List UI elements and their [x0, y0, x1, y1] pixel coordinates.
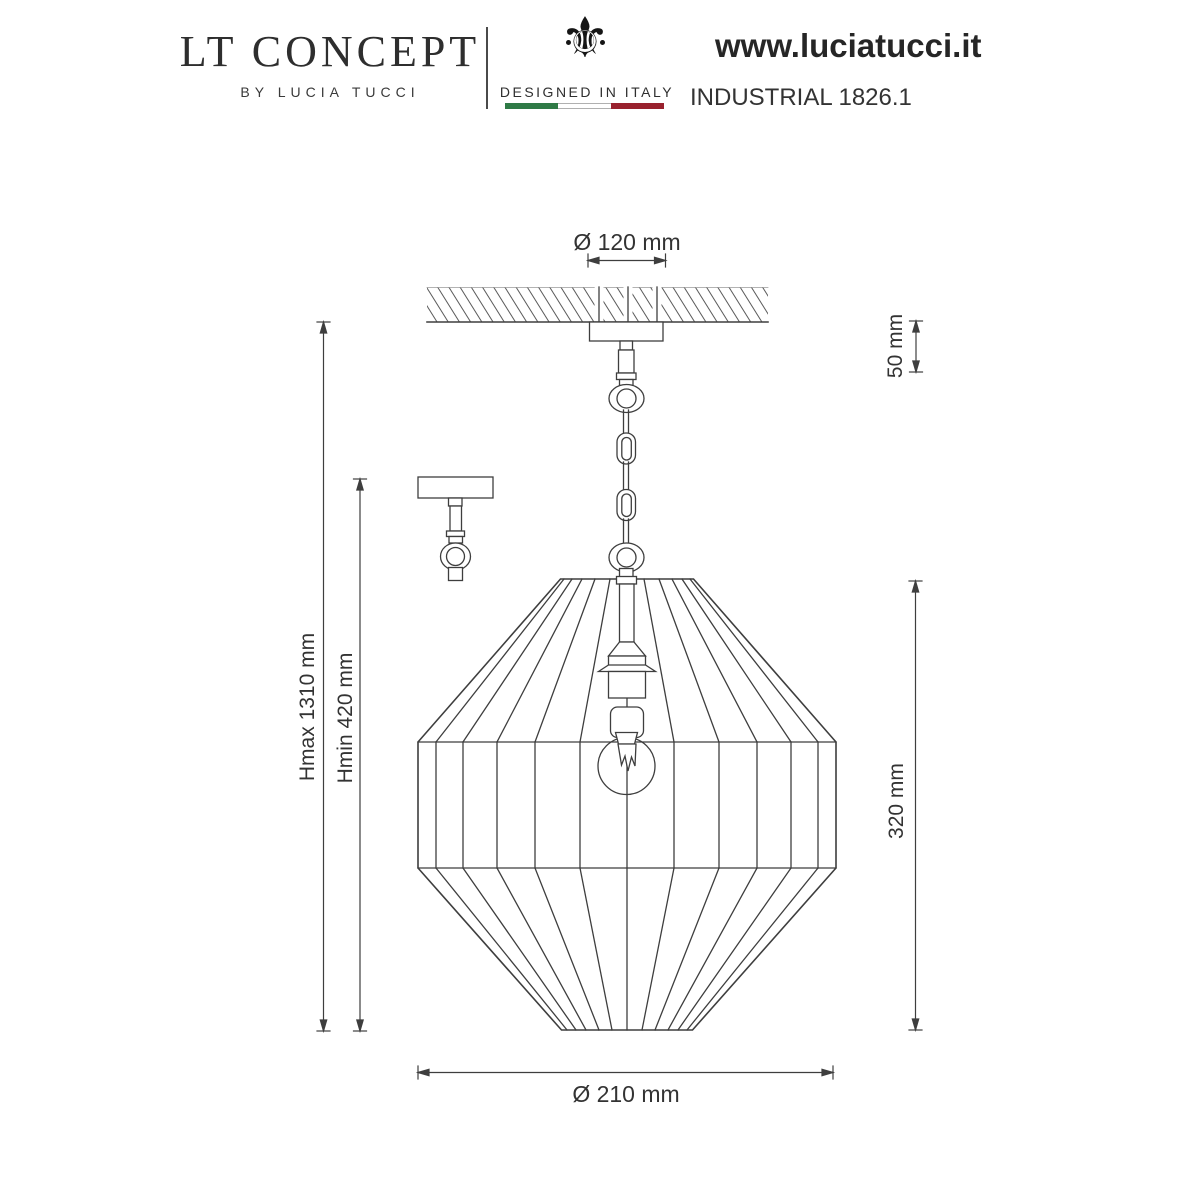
label-canopy-height: 50 mm	[883, 226, 909, 466]
label-min-height: Hmin 420 mm	[333, 598, 359, 838]
hook-ring-bottom	[609, 543, 644, 572]
bulb-filament	[618, 744, 636, 771]
dim-canopy-height	[910, 321, 923, 372]
label-max-height: Hmax 1310 mm	[295, 587, 321, 827]
dim-canopy-diameter	[588, 254, 666, 267]
label-shade-height: 320 mm	[884, 681, 910, 921]
product-spec-sheet: LT CONCEPT BY LUCIA TUCCI ⚜ DESIGNED IN …	[0, 0, 1200, 1200]
socket-and-bulb	[598, 577, 656, 795]
label-canopy-diameter: Ø 120 mm	[507, 229, 747, 255]
suspension-chain	[609, 341, 644, 580]
lamp-technical-drawing	[0, 0, 1200, 1200]
label-shade-diameter: Ø 210 mm	[506, 1081, 746, 1107]
lamp-socket	[609, 672, 646, 699]
ceiling-canopy	[590, 322, 664, 341]
ceiling-hatch	[427, 286, 768, 323]
dim-shade-height	[909, 581, 922, 1030]
dim-shade-diameter	[418, 1066, 833, 1079]
alt-canopy	[418, 477, 493, 581]
